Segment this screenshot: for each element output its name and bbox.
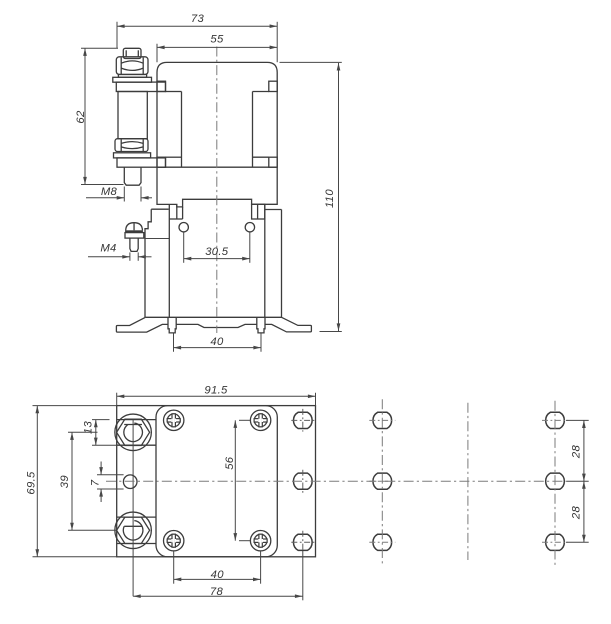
svg-text:40: 40 (210, 336, 224, 348)
svg-text:78: 78 (210, 586, 224, 598)
svg-text:7: 7 (90, 479, 102, 486)
svg-text:40: 40 (211, 569, 225, 581)
svg-text:110: 110 (324, 189, 336, 208)
svg-text:M8: M8 (101, 186, 118, 198)
svg-text:30.5: 30.5 (205, 246, 229, 258)
svg-text:39: 39 (59, 475, 71, 489)
svg-text:91.5: 91.5 (204, 384, 228, 396)
svg-text:56: 56 (224, 456, 236, 470)
svg-text:28: 28 (571, 445, 583, 460)
svg-text:55: 55 (210, 33, 224, 45)
svg-text:69.5: 69.5 (25, 471, 37, 495)
svg-text:28: 28 (571, 506, 583, 521)
svg-text:73: 73 (191, 13, 205, 25)
svg-text:62: 62 (75, 110, 87, 124)
svg-text:M4: M4 (100, 243, 116, 255)
